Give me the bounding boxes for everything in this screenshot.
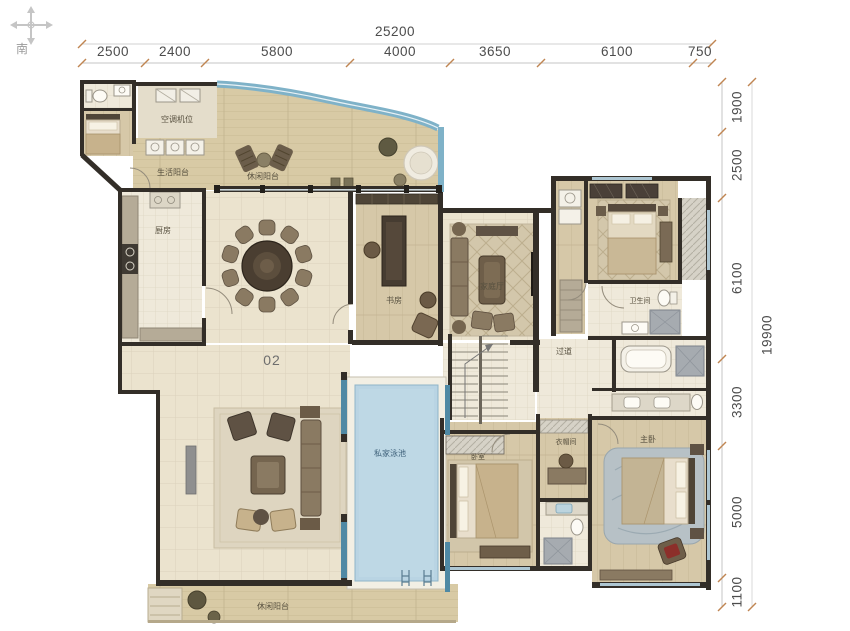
label-guest-bath: 卫生间 (630, 296, 651, 305)
dimension-right: 1900 2500 6100 3300 5000 1100 19900 (718, 78, 775, 611)
sink-icon (622, 322, 648, 334)
wall-diagonal (82, 155, 120, 190)
dim-right-seg-1: 2500 (730, 149, 745, 181)
compass: 南 (10, 6, 53, 56)
unit-number: 02 (263, 352, 281, 368)
label-ac-platform: 空调机位 (161, 114, 193, 124)
dim-right-seg-5: 1100 (730, 576, 745, 607)
label-terrace: 休闲阳台 (257, 601, 289, 611)
toilet-icon (571, 519, 583, 535)
label-pool: 私家泳池 (374, 448, 406, 458)
compass-cross-icon (15, 11, 48, 40)
label-family-room: 家庭厅 (480, 281, 504, 291)
label-kitchen: 厨房 (155, 225, 171, 235)
dimension-top: 25200 2500 2400 5800 4000 3650 6100 750 (78, 24, 716, 67)
plant-icon (379, 138, 397, 156)
plant-icon (188, 591, 206, 609)
washer-icon (559, 190, 581, 207)
dim-top-seg-1: 2400 (159, 44, 191, 59)
label-bedroom: 卧室 (471, 452, 485, 461)
label-closet: 衣帽间 (556, 437, 577, 446)
tv-cabinet-icon (186, 446, 196, 494)
label-hallway: 过道 (556, 346, 572, 356)
floorplan-drawing: 空调机位 生活阳台 休闲阳台 厨房 书房 家庭厅 过道 卫生间 衣帽间 私家泳池… (0, 0, 850, 631)
dim-top-seg-5: 6100 (601, 44, 633, 59)
dim-right-seg-0: 1900 (730, 91, 745, 123)
dim-top-seg-2: 5800 (261, 44, 293, 59)
toilet-icon (692, 395, 703, 410)
dim-top-seg-3: 4000 (384, 44, 416, 59)
console-icon (480, 546, 530, 558)
shelving-icon (560, 280, 582, 332)
compass-south-label: 南 (16, 41, 28, 56)
dim-right-seg-2: 6100 (730, 262, 745, 294)
label-service-balcony: 生活阳台 (157, 167, 189, 177)
dim-right-seg-4: 5000 (730, 496, 745, 528)
nightstand-icon (690, 444, 704, 455)
floorplan-page: 空调机位 生活阳台 休闲阳台 厨房 书房 家庭厅 过道 卫生间 衣帽间 私家泳池… (0, 0, 850, 631)
laundry-units (146, 140, 204, 155)
desk-chair-icon (364, 242, 380, 258)
sofa-icon (451, 238, 468, 316)
wardrobe-icon (446, 436, 504, 454)
toilet-icon (93, 90, 107, 102)
pool (347, 377, 446, 589)
dim-top-seg-4: 3650 (479, 44, 511, 59)
sink-icon (556, 504, 572, 513)
toilet-icon (658, 290, 670, 306)
dim-top-total: 25200 (375, 24, 415, 39)
dim-top-seg-0: 2500 (97, 44, 129, 59)
label-master-bedroom: 主卧 (640, 434, 656, 444)
label-leisure-balcony: 休闲阳台 (247, 171, 279, 181)
label-study: 书房 (386, 295, 402, 305)
dim-top-seg-6: 750 (688, 44, 712, 59)
nightstand-icon (690, 528, 704, 539)
dim-right-seg-3: 3300 (730, 386, 745, 418)
vanity-desk-icon (548, 468, 586, 484)
round-table-icon (257, 153, 271, 167)
dim-right-total: 19900 (760, 315, 775, 355)
